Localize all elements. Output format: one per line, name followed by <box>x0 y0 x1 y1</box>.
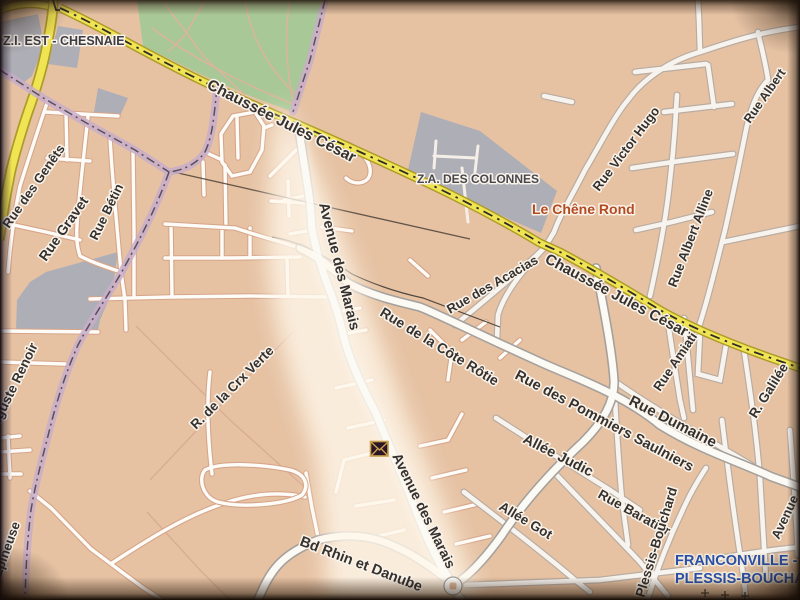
svg-text:Le Chêne Rond: Le Chêne Rond <box>532 201 635 217</box>
svg-text:Z.A. DES COLONNES: Z.A. DES COLONNES <box>417 172 539 186</box>
